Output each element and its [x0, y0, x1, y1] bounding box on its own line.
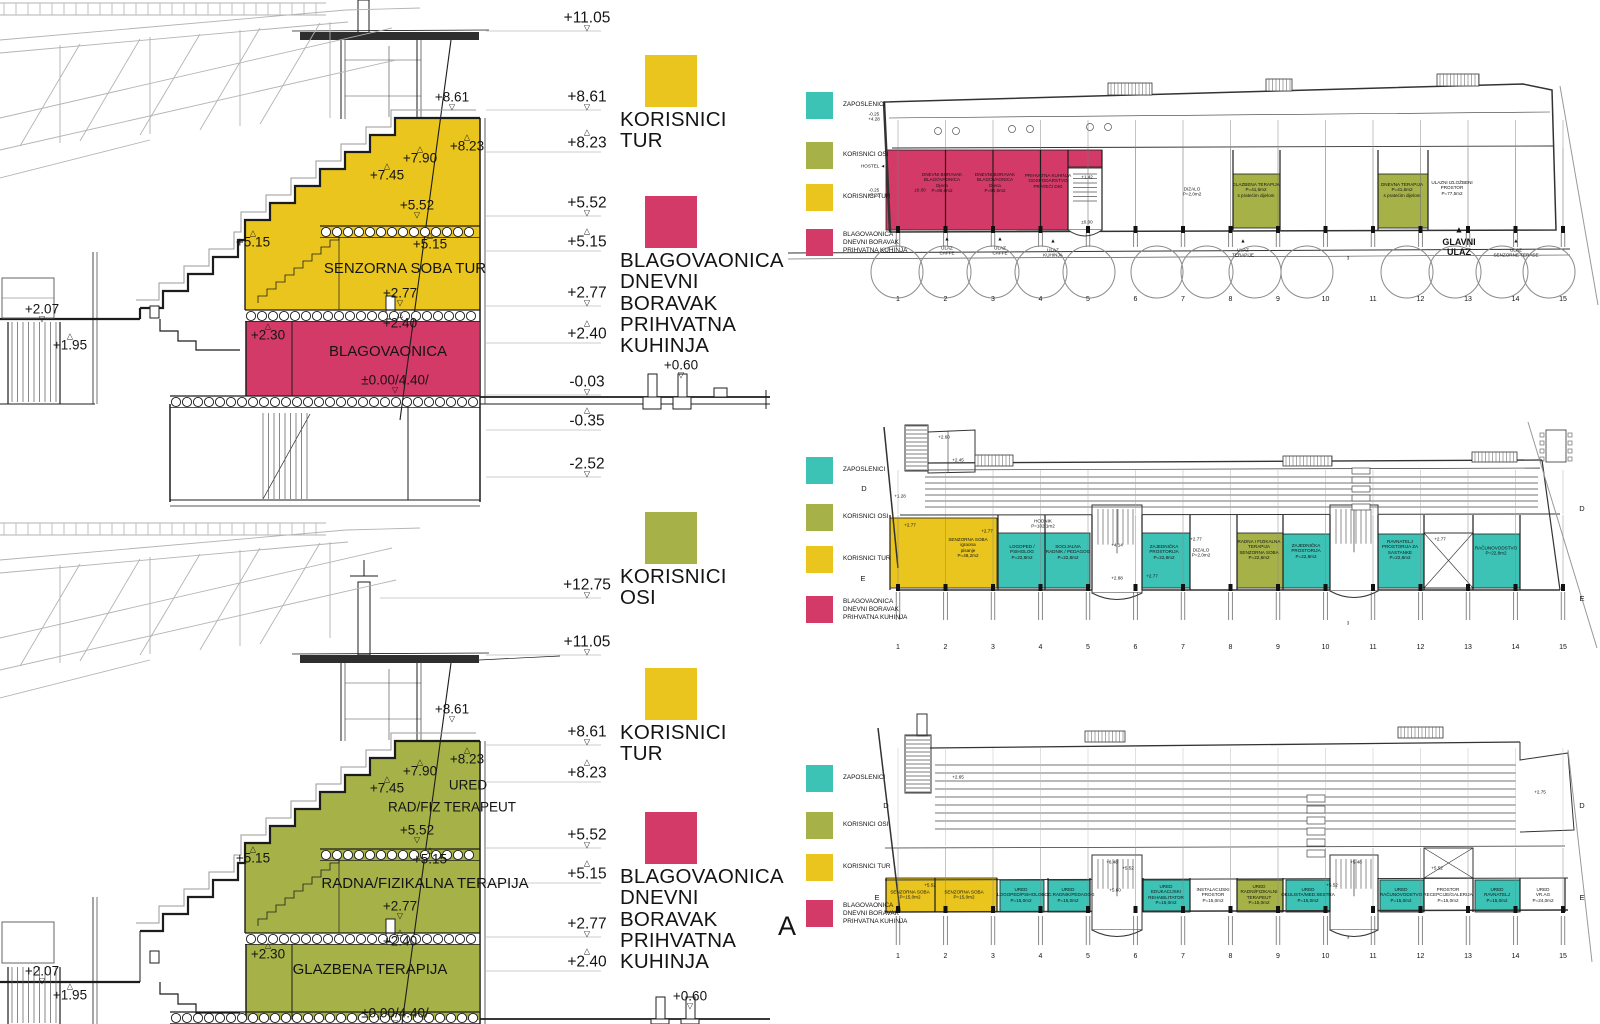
- annotation-text: DNEVNA TERAPIJA P=41,6m2 s pratećim dije…: [1381, 182, 1423, 198]
- elevation-label: +2.77▽: [567, 915, 606, 936]
- plan-legend-label: KORISNICI OSI: [843, 821, 888, 829]
- generated-linework: [0, 3, 1575, 1024]
- grid-number: 9: [1276, 296, 1280, 304]
- grid-number: 12: [1417, 953, 1425, 961]
- annotation-text: ▲: [944, 236, 949, 242]
- plan-p3-label: +5.52: [1326, 882, 1338, 887]
- plan-p2-label: RADNA I FIZIKALNA TERAPIJA SENZORNA SOBA…: [1238, 539, 1281, 561]
- plan-legend-swatch-korisnici_tur: [806, 184, 833, 211]
- plan-p3-label: +5.52: [1431, 865, 1443, 870]
- plan-p1-label: GLAZBENA TERAPIJA P=41,6m2 s pratećim di…: [1232, 182, 1279, 198]
- annotation-text: +5.52: [1326, 882, 1338, 887]
- grid-number: 10: [1322, 953, 1330, 961]
- plan-p2-label: ZAJEDNIČKA PROSTORIJA P=22,8m2: [1291, 543, 1320, 559]
- annotation-text: E: [1579, 893, 1584, 902]
- grid-number: 8: [1229, 953, 1233, 961]
- plan-legend-swatch-korisnici_tur: [806, 854, 833, 881]
- annotation-text: 12: [1417, 296, 1425, 303]
- annotation-text: +5.52: [1431, 865, 1443, 870]
- annotation-text: RAČUNOVODSTVO P=22,8m2: [1475, 546, 1517, 556]
- grid-number: 5: [1086, 296, 1090, 304]
- annotation-text: 4: [1039, 953, 1043, 960]
- grid-number: 12: [1417, 644, 1425, 652]
- grid-number: 13: [1464, 296, 1472, 304]
- plan-p2-label: SOCIJALNA RADNIK / PEDAGOG P=22,8m2: [1046, 544, 1090, 560]
- annotation-text: 11: [1369, 296, 1376, 303]
- annotation-text: ULAZ SENZORNE TERASE: [1493, 248, 1538, 258]
- annotation-text: 8: [1229, 644, 1233, 651]
- plan-p1-label: DNEVNI BORAVAK BLAGOVAONICA Djeca P=86,6…: [975, 172, 1015, 194]
- elevation-label: -2.52▽: [569, 455, 604, 476]
- annotation-text: 13: [1464, 644, 1472, 651]
- annotation-text: E: [874, 893, 879, 902]
- plan-p2-label: +2.77: [1190, 536, 1202, 541]
- plan-p3-label: +5.48: [1350, 859, 1362, 864]
- elevation-label: △+2.40: [567, 949, 606, 970]
- section-bottom-label: RADNA/FIZIKALNA TERAPIJA: [321, 876, 528, 893]
- plan-p3-label: SENZORNA SOBA P=15,0m2: [890, 890, 929, 901]
- plan-p2-label: SENZORNA SOBA igraona pisanje P=48,2m2: [948, 537, 987, 559]
- plan-p1-label: ▲: [944, 237, 949, 243]
- floor-plan-3: [878, 714, 1592, 962]
- plan-p2-label: D: [861, 485, 866, 493]
- grid-number: 15: [1559, 953, 1567, 961]
- grid-number: 7: [1181, 296, 1185, 304]
- legend-swatch-korisnici_osi: [645, 512, 697, 564]
- plan-p2-label: DIZALO P=2,0m2: [1192, 548, 1211, 559]
- annotation-text: SOCIJALNA RADNIK / PEDAGOG P=22,8m2: [1046, 544, 1090, 560]
- annotation-text: ULAZ CAFFE: [992, 246, 1007, 256]
- plan-p2-label: +4.14: [1111, 542, 1123, 547]
- section-bottom-label: △+7.90: [403, 760, 437, 779]
- grid-number: 8: [1229, 644, 1233, 652]
- annotation-text: 12: [1417, 953, 1425, 960]
- annotation-text: 6: [1134, 644, 1138, 651]
- plan-p1-label: ▲: [1455, 226, 1464, 235]
- section-bottom-label: +2.07▽: [25, 964, 59, 983]
- annotation-text: 4: [1039, 644, 1043, 651]
- annotation-text: 3: [991, 296, 995, 303]
- plan-legend-swatch-korisnici_osi: [806, 504, 833, 531]
- plan-p3-label: INSTALACIJSKI PROSTOR P=15,0m2: [1196, 887, 1229, 903]
- section-top-label: BLAGOVAONICA: [329, 344, 447, 361]
- annotation-text: URED VR.AG P=24,0m2: [1532, 887, 1553, 903]
- plan-p2-label: +2.77: [1434, 536, 1446, 541]
- section-bottom-label: +0.60▽: [673, 989, 707, 1008]
- annotation-text: +7.90: [403, 151, 437, 166]
- annotation-text: +5.15: [567, 234, 606, 251]
- annotation-text: 3: [991, 953, 995, 960]
- annotation-text: 6: [1134, 953, 1138, 960]
- legend-swatch-blagovaonica: [645, 196, 697, 248]
- elevation-label: +8.61▽: [567, 723, 606, 744]
- plan-p2-label: +2.77: [981, 528, 993, 533]
- elevation-label: △+5.15: [567, 229, 606, 250]
- annotation-text: 2: [944, 644, 948, 651]
- section-top-label: △+7.45: [370, 164, 404, 183]
- plan-p1-label: DNEVNI BORAVAK BLAGOVAONICA Djeca P=86,6…: [922, 172, 962, 194]
- plan-p2-label: 3: [1347, 620, 1350, 625]
- annotation-text: URED OKULISTA/MED.SESTRA P=15,0m2: [1281, 887, 1335, 903]
- plan-legend-swatch-blagovaonica: [806, 229, 833, 256]
- plan-p1-label: ▲: [1050, 239, 1055, 245]
- annotation-text: +2.77: [1190, 536, 1202, 541]
- annotation-text: ULAZ TERAPIJE: [1232, 248, 1254, 258]
- annotation-text: ULAZNI IZLOŽBENI PROSTOR P=77,5m2: [1431, 180, 1472, 196]
- elevation-label: -0.03▽: [569, 373, 604, 394]
- plan-p1-label: -0.25 +4.28: [868, 112, 880, 123]
- annotation-text: 3: [991, 644, 995, 651]
- grid-number: 9: [1276, 644, 1280, 652]
- annotation-text: 15: [1559, 644, 1567, 651]
- annotation-text: +5.15: [413, 852, 447, 867]
- plan-p1-label: DNEVNA TERAPIJA P=41,6m2 s pratećim dije…: [1381, 182, 1423, 198]
- plan-p2-label: E: [1579, 595, 1584, 603]
- annotation-text: +2.77: [904, 522, 916, 527]
- plan-legend-label: ZAPOSLENICI: [843, 466, 885, 474]
- section-bottom-label: ±0.00/4.40/▽: [361, 1006, 428, 1024]
- annotation-text: 11: [1369, 644, 1376, 651]
- plan-p3-label: +5.52: [1122, 865, 1134, 870]
- plan-zone-zaposlenici: [998, 533, 1090, 588]
- annotation-text: +1.28: [894, 493, 906, 498]
- annotation-text: +8.23: [567, 135, 606, 152]
- annotation-text: URED LOGOPED/PSIHOLOG P=15,0m2: [997, 887, 1045, 903]
- annotation-text: 10: [1322, 644, 1330, 651]
- grid-number: 3: [991, 953, 995, 961]
- annotation-text: +2.40: [567, 954, 606, 971]
- plan-legend-swatch-blagovaonica: [806, 596, 833, 623]
- plan-p1-label: ULAZ CAFFE: [939, 246, 954, 257]
- annotation-text: +7.45: [370, 781, 404, 796]
- annotation-text: D: [861, 484, 866, 493]
- elevation-label: +2.77▽: [567, 284, 606, 305]
- annotation-text: RADNA I FIZIKALNA TERAPIJA SENZORNA SOBA…: [1238, 539, 1281, 560]
- plan-p2-label: LOGOPED / PSIHOLOG P=22,8m2: [1009, 544, 1034, 560]
- annotation-text: 10: [1322, 953, 1330, 960]
- grid-number: 13: [1464, 644, 1472, 652]
- plan-p2-label: D: [1579, 505, 1584, 513]
- annotation-text: +5.48: [1350, 859, 1362, 864]
- plan-p1-label: ULAZ KUHINJA: [1043, 248, 1063, 259]
- section-top-label: +8.61▽: [435, 90, 469, 109]
- annotation-text: 7: [1181, 953, 1185, 960]
- legend-swatch-blagovaonica: [645, 812, 697, 864]
- annotation-text: ±0.00: [1081, 219, 1092, 224]
- grid-number: 7: [1181, 953, 1185, 961]
- plan-p1-label: ULAZ CAFFE: [992, 246, 1007, 257]
- grid-number: 6: [1134, 953, 1138, 961]
- annotation-text: URED SOC.RADNIK/PEDAGOG P=15,0m2: [1041, 887, 1094, 903]
- section-bottom-label: GLAZBENA TERAPIJA: [293, 962, 448, 979]
- plan-p2-label: +2.88: [1111, 575, 1123, 580]
- elevation-label: +5.52▽: [567, 826, 606, 847]
- plan-p3-label: +5.60: [1109, 887, 1121, 892]
- annotation-text: 12: [1417, 644, 1425, 651]
- annotation-text: 5: [1086, 644, 1090, 651]
- legend-swatch-korisnici_tur: [645, 55, 697, 107]
- annotation-text: +5.15: [236, 851, 270, 866]
- grid-number: 14: [1512, 296, 1520, 304]
- grid-number: 6: [1134, 296, 1138, 304]
- zone-senzorna-soba-tur: [245, 118, 480, 310]
- plan-p1-label: ±0.00: [1081, 219, 1092, 224]
- annotation-text: 3: [1347, 255, 1350, 260]
- plan-legend-label: KORISNICI OSI: [843, 513, 888, 521]
- annotation-text: +8.23: [450, 139, 484, 154]
- section-top-label: ±0.00/4.40/▽: [361, 373, 428, 392]
- annotation-text: 15: [1559, 953, 1567, 960]
- plan-p3-label: +6.48: [1106, 859, 1118, 864]
- annotation-text: 2: [944, 296, 948, 303]
- annotation-text: +2.77: [981, 528, 993, 533]
- section-bottom-label: △+7.45: [370, 777, 404, 796]
- annotation-text: +2.30: [251, 328, 285, 343]
- annotation-text: HOSTEL ◄: [861, 163, 885, 168]
- section-top-label: △+5.15: [413, 233, 447, 252]
- grid-number: 10: [1322, 296, 1330, 304]
- grid-number: 5: [1086, 953, 1090, 961]
- plan-p3-label: URED RAČUNOVODSTVO P=15,0m2: [1380, 887, 1422, 903]
- section-bottom-label: △+2.30: [251, 943, 285, 962]
- section-top-label: +0.60▽: [664, 358, 698, 377]
- plan-p2-label: RAČUNOVODSTVO P=22,8m2: [1475, 546, 1517, 557]
- annotation-text: 13: [1464, 953, 1472, 960]
- plan-p1-label: GLAVNI ULAZ: [1442, 238, 1475, 258]
- annotation-text: 3: [1347, 934, 1350, 939]
- section-bottom-label: △+2.40: [383, 930, 417, 949]
- grid-number: 15: [1559, 644, 1567, 652]
- annotation-text: 14: [1512, 644, 1520, 651]
- annotation-text: RAD/FIZ TERAPEUT: [388, 800, 516, 815]
- plan-p3-label: URED SOC.RADNIK/PEDAGOG P=15,0m2: [1041, 887, 1094, 903]
- plan-legend-swatch-korisnici_osi: [806, 142, 833, 169]
- annotation-text: +6.48: [1106, 859, 1118, 864]
- plan-legend-label: BLAGOVAONICA DNEVNI BORAVAK PRIHVATNA KU…: [843, 598, 907, 622]
- annotation-text: +4.14: [1111, 542, 1123, 547]
- annotation-text: D: [883, 801, 888, 810]
- plan-legend-swatch-korisnici_tur: [806, 546, 833, 573]
- plan-p1-label: HOSTEL ◄: [861, 163, 885, 168]
- annotation-text: 13: [1464, 296, 1472, 303]
- annotation-text: BLAGOVAONICA: [329, 343, 447, 360]
- annotation-text: URED: [449, 778, 487, 793]
- grid-number: 11: [1369, 296, 1376, 304]
- annotation-text: 14: [1512, 953, 1520, 960]
- annotation-text: +1.95: [53, 338, 87, 353]
- annotation-text: 5: [1086, 296, 1090, 303]
- annotation-text: LOGOPED / PSIHOLOG P=22,8m2: [1009, 544, 1034, 560]
- annotation-text: URED RAVNATELJ P=15,0m2: [1484, 887, 1510, 903]
- grid-number: 5: [1086, 644, 1090, 652]
- annotation-text: +1.95: [53, 988, 87, 1003]
- annotation-text: SENZORNA SOBA P=15,0m2: [890, 890, 929, 900]
- plan-p2-label: ZAJEDNIČKA PROSTORIJA P=22,8m2: [1149, 544, 1178, 560]
- annotation-text: ULAZ KUHINJA: [1043, 248, 1063, 258]
- plan-p3-label: URED RADNI/FIZIKALNI TERAPEUT P=15,0m2: [1240, 884, 1277, 906]
- elevation-label: △+8.23: [567, 130, 606, 151]
- grid-number: 13: [1464, 953, 1472, 961]
- annotation-text: +2.77: [1146, 573, 1158, 578]
- section-top-label: SENZORNA SOBA TUR: [324, 261, 486, 278]
- grid-number: 2: [944, 296, 948, 304]
- annotation-text: 6: [1134, 296, 1138, 303]
- annotation-text: ▲: [1455, 225, 1464, 235]
- plan-p1-label: ULAZ SENZORNE TERASE: [1493, 248, 1538, 259]
- grid-number: 2: [944, 953, 948, 961]
- annotation-text: +2.60: [938, 434, 950, 439]
- annotation-text: D: [1579, 801, 1584, 810]
- grid-number: 6: [1134, 644, 1138, 652]
- legend-label: KORISNICI TUR: [620, 722, 727, 765]
- annotation-text: 1: [896, 296, 900, 303]
- annotation-text: 1: [896, 644, 900, 651]
- annotation-text: +8.23: [450, 752, 484, 767]
- plan-zone-zaposlenici: [1473, 534, 1520, 588]
- plan-p3-label: D: [1579, 802, 1584, 810]
- section-bottom-label: △+8.23: [450, 748, 484, 767]
- section-top-label: △+1.95: [53, 334, 87, 353]
- annotation-text: +1.42: [1081, 174, 1093, 179]
- grid-number: 4: [1039, 296, 1043, 304]
- legend-swatch-korisnici_tur: [645, 668, 697, 720]
- plan-zone-blagovaonica: [1068, 150, 1102, 167]
- section-bottom-label: +2.77▽: [383, 899, 417, 918]
- annotation-text: +2.65: [952, 774, 964, 779]
- plan-legend-swatch-zaposlenici: [806, 457, 833, 484]
- grid-number: 9: [1276, 953, 1280, 961]
- section-top-label: +2.07▽: [25, 302, 59, 321]
- grid-number: 3: [991, 644, 995, 652]
- annotation-text: RAVNATELJ PROSTORIJA ZA SASTANKE P=22,8m…: [1382, 539, 1418, 560]
- annotation-text: +2.40: [383, 934, 417, 949]
- grid-number: 8: [1229, 296, 1233, 304]
- plan-legend-label: ZAPOSLENICI: [843, 101, 885, 109]
- annotation-text: +5.52: [1122, 865, 1134, 870]
- plan-legend-label: BLAGOVAONICA DNEVNI BORAVAK PRIHVATNA KU…: [843, 231, 907, 255]
- elevation-label: +8.61▽: [567, 88, 606, 109]
- annotation-text: +2.88: [1111, 575, 1123, 580]
- grid-number: 4: [1039, 953, 1043, 961]
- annotation-text: 8: [1229, 296, 1233, 303]
- annotation-text: 9: [1276, 953, 1280, 960]
- elevation-label: +11.05▽: [564, 633, 611, 654]
- plan-p3-label: PROSTOR RECEPCIJE/GALERIJA P=15,0m2: [1423, 887, 1472, 903]
- annotation-text: ZAJEDNIČKA PROSTORIJA P=22,8m2: [1291, 543, 1320, 559]
- plan-legend-swatch-blagovaonica: [806, 900, 833, 927]
- annotation-text: +5.15: [567, 866, 606, 883]
- annotation-text: 3: [1347, 620, 1350, 625]
- plan-legend-label: KORISNICI TUR: [843, 555, 890, 563]
- grid-number: 1: [896, 644, 900, 652]
- annotation-text: 4: [1039, 296, 1043, 303]
- plan-legend-label: BLAGOVAONICA DNEVNI BORAVAK PRIHVATNA KU…: [843, 902, 907, 926]
- annotation-text: +5.60: [1109, 887, 1121, 892]
- annotation-text: +5.15: [236, 235, 270, 250]
- elevation-label: +11.05▽: [564, 9, 611, 30]
- plan-legend-label: ZAPOSLENICI: [843, 774, 885, 782]
- elevation-label: △+2.40: [567, 321, 606, 342]
- annotation-text: D: [1579, 504, 1584, 513]
- plan-legend-swatch-zaposlenici: [806, 765, 833, 792]
- plan-p2-label: +1.28: [894, 493, 906, 498]
- annotation-text: 5: [1086, 953, 1090, 960]
- annotation-text: SENZORNA SOBA P=15,0m2: [944, 890, 983, 900]
- annotation-text: ▲: [1513, 238, 1518, 244]
- annotation-text: +8.23: [567, 765, 606, 782]
- plan-p1-label: ▲: [997, 237, 1002, 243]
- annotation-text: GLAVNI ULAZ: [1442, 237, 1475, 257]
- drawing-linework: [0, 0, 1600, 1024]
- plan-legend-label: KORISNICI TUR: [843, 863, 890, 871]
- annotation-text: DNEVNI BORAVAK BLAGOVAONICA Djeca P=86,6…: [975, 172, 1015, 193]
- annotation-text: +7.45: [370, 168, 404, 183]
- plan-p3-label: URED VR.AG P=24,0m2: [1532, 887, 1553, 903]
- plan-p3-label: URED LOGOPED/PSIHOLOG P=15,0m2: [997, 887, 1045, 903]
- plan-legend-label: KORISNICI OSI: [843, 151, 888, 159]
- plan-p3-label: URED OKULISTA/MED.SESTRA P=15,0m2: [1281, 887, 1335, 903]
- legend-label: KORISNICI TUR: [620, 109, 727, 152]
- annotation-text: 10: [1322, 296, 1330, 303]
- annotation-text: +2.30: [251, 947, 285, 962]
- annotation-text: URED EDUKACIJSKI REHABILITATOR P=15,0m2: [1148, 884, 1184, 905]
- grid-number: 14: [1512, 953, 1520, 961]
- plan-p2-label: +2.77: [904, 522, 916, 527]
- annotation-text: E: [860, 574, 865, 583]
- annotation-text: SENZORNA SOBA TUR: [324, 260, 486, 277]
- annotation-text: 7: [1181, 296, 1185, 303]
- plan-p3-label: +2.75: [1534, 789, 1546, 794]
- annotation-text: ▲: [1240, 238, 1245, 244]
- annotation-text: ZAJEDNIČKA PROSTORIJA P=22,8m2: [1149, 544, 1178, 560]
- annotation-text: PRIHVATNA KUHINJA GOSPODARSTVO PRATEĆI D…: [1025, 173, 1071, 189]
- section-top-label: △+2.40: [383, 312, 417, 331]
- annotation-text: SENZORNA SOBA igraona pisanje P=48,2m2: [948, 537, 987, 558]
- plan-p3-label: +2.65: [952, 774, 964, 779]
- annotation-text: +2.45: [952, 457, 964, 462]
- plan-p3-label: SENZORNA SOBA P=15,0m2: [944, 890, 983, 901]
- plan-legend-swatch-korisnici_osi: [806, 812, 833, 839]
- annotation-text: ▲: [1050, 238, 1055, 244]
- plan-p2-label: E: [860, 575, 865, 583]
- elevation-label: △+5.15: [567, 861, 606, 882]
- annotation-text: 9: [1276, 296, 1280, 303]
- annotation-text: +2.40: [567, 326, 606, 343]
- architectural-drawing-sheet: SENZORNA SOBA TURBLAGOVAONICA+8.61▽△+8.2…: [0, 0, 1600, 1024]
- grid-number: 4: [1039, 644, 1043, 652]
- section-bottom-label: △+5.15: [236, 847, 270, 866]
- annotation-text: 9: [1276, 644, 1280, 651]
- annotation-text: PROSTOR RECEPCIJE/GALERIJA P=15,0m2: [1423, 887, 1472, 903]
- grid-number: 11: [1369, 953, 1376, 961]
- plan-p2-label: +2.60: [938, 434, 950, 439]
- plan-p3-label: 3: [1347, 934, 1350, 939]
- grid-number: 1: [896, 296, 900, 304]
- grid-number: 1: [896, 953, 900, 961]
- plan-p1-label: ULAZNI IZLOŽBENI PROSTOR P=77,5m2: [1431, 180, 1472, 196]
- grid-number: 2: [944, 644, 948, 652]
- grid-number: 12: [1417, 296, 1425, 304]
- annotation-text: INSTALACIJSKI PROSTOR P=15,0m2: [1196, 887, 1229, 903]
- elevation-label: △+8.23: [567, 760, 606, 781]
- plan-p2-label: +2.45: [952, 457, 964, 462]
- annotation-text: -0.35: [569, 413, 604, 430]
- section-bottom-label: URED: [449, 779, 487, 794]
- grid-number: 11: [1369, 644, 1376, 652]
- plan-p1-label: ▲: [1240, 239, 1245, 245]
- plan-p3-label: E: [874, 894, 879, 902]
- plan-p2-label: HODNIK P=102,1m2: [1031, 519, 1055, 530]
